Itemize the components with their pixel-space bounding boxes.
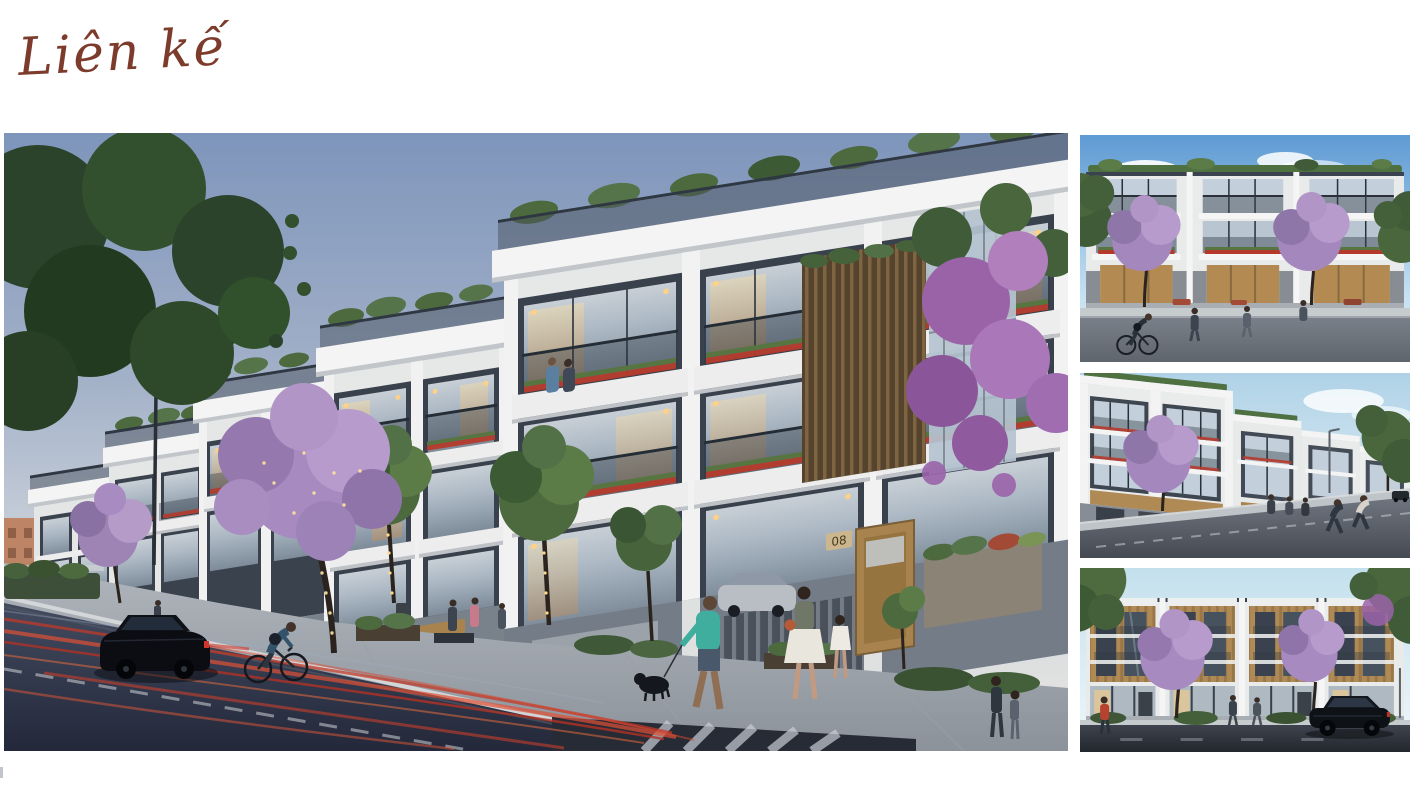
thumbnail-front-elevation-car <box>1080 568 1410 752</box>
main-street-perspective-render: 08 <box>4 133 1068 751</box>
main-render-svg: 08 <box>4 133 1068 751</box>
house-number-plaque: 08 <box>831 533 846 549</box>
thumbnail-3-svg <box>1080 568 1410 752</box>
page-title: Liên kế <box>16 17 228 88</box>
thumbnail-2-svg <box>1080 373 1410 558</box>
thumbnail-angled-street-day <box>1080 373 1410 558</box>
page-edge-artifact <box>0 767 3 778</box>
thumbnail-1-svg <box>1080 135 1410 362</box>
thumbnail-front-elevation-day <box>1080 135 1410 362</box>
